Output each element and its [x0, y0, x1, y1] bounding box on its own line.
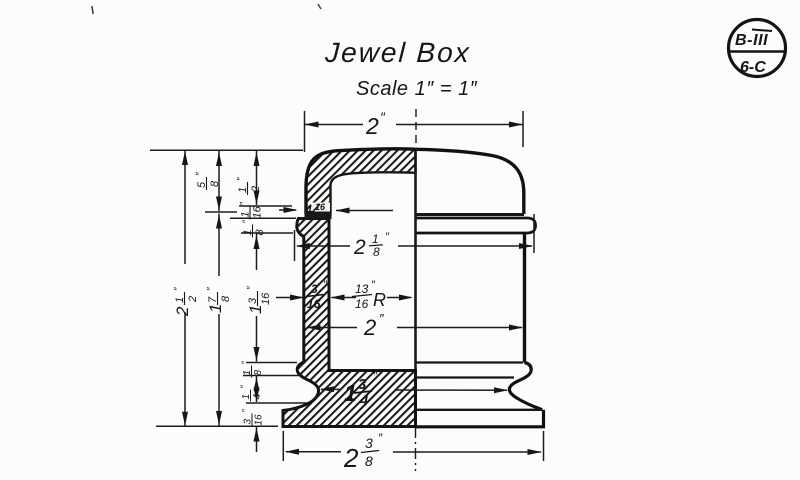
svg-text:Jewel Box: Jewel Box: [323, 37, 471, 68]
svg-text:3: 3: [358, 376, 367, 393]
svg-text:16: 16: [254, 414, 265, 426]
svg-text:8: 8: [373, 245, 380, 259]
svg-text:Scale 1″ = 1″: Scale 1″ = 1″: [356, 78, 478, 100]
svg-text:″: ″: [379, 311, 384, 326]
svg-text:3: 3: [311, 282, 318, 296]
svg-text:3: 3: [365, 435, 373, 451]
svg-text:16: 16: [260, 292, 272, 305]
svg-text:1: 1: [206, 304, 225, 313]
svg-text:2: 2: [343, 443, 359, 473]
svg-text:1: 1: [372, 232, 379, 246]
svg-text:2: 2: [173, 306, 192, 317]
svg-text:13: 13: [355, 282, 369, 296]
svg-text:16: 16: [315, 202, 326, 212]
svg-text:8: 8: [254, 229, 266, 236]
svg-text:2: 2: [353, 236, 366, 259]
svg-text:6-C: 6-C: [740, 59, 766, 76]
svg-text:8: 8: [220, 295, 232, 302]
svg-text:8: 8: [253, 370, 264, 376]
svg-text:16: 16: [355, 297, 369, 311]
svg-text:″: ″: [246, 286, 257, 290]
svg-text:2: 2: [187, 296, 199, 303]
svg-text:R: R: [373, 290, 386, 310]
svg-text:2: 2: [363, 315, 376, 340]
svg-text:2: 2: [250, 186, 262, 193]
svg-text:4: 4: [252, 394, 263, 400]
svg-text:4: 4: [359, 392, 369, 409]
svg-text:16: 16: [252, 205, 264, 218]
svg-text:8: 8: [209, 180, 221, 187]
svg-text:″: ″: [206, 287, 217, 291]
svg-text:B-III: B-III: [735, 32, 768, 49]
svg-text:8: 8: [365, 453, 373, 469]
svg-text:2: 2: [365, 113, 379, 139]
svg-text:″: ″: [236, 177, 247, 181]
svg-text:″: ″: [173, 287, 184, 291]
svg-text:″: ″: [195, 172, 206, 176]
svg-text:16: 16: [307, 297, 321, 311]
